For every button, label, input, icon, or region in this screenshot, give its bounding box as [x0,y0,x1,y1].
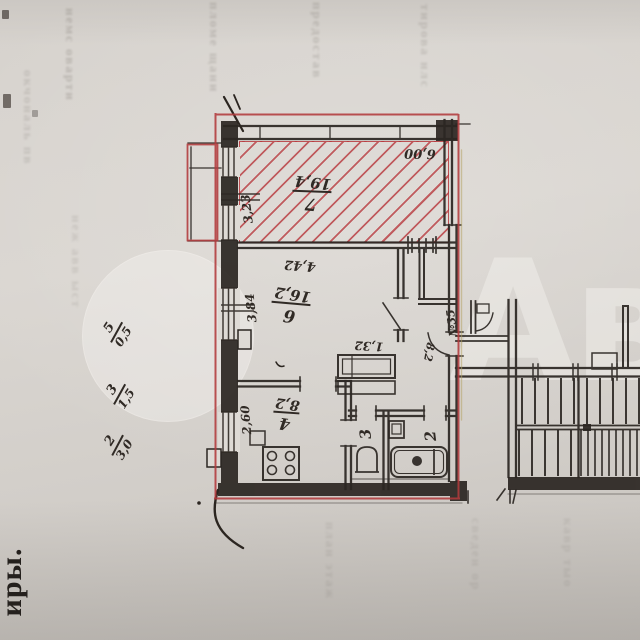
floor-plan-photo: немс оварти пломе щани предостав тирова … [0,0,640,640]
dim-hall-width: 1,32 [354,339,384,353]
room3-label: 3 [358,428,374,440]
room4-number: 4 [278,415,291,432]
apartment-number-label: №35 [445,309,459,337]
balcony-outline [188,145,218,241]
room4-area: 8,2 [274,395,300,412]
page-edge-printed-word: иры. [0,548,29,617]
room2-label: 2 [423,430,439,442]
dim-kitchen-height: 2,60 [239,405,254,435]
dim-room6-width: 4,42 [284,257,317,272]
toilet-icon [355,447,379,472]
dim-room6-height: 3,84 [244,293,259,323]
room7-number: 7 [304,194,318,212]
stove-icon [263,447,299,480]
dim-room7-height: 3,23 [239,194,254,224]
floor-plan-drawing [0,0,640,640]
hall-area-label: 8,2 [422,342,436,363]
room7-label: 7 19,4 [292,173,332,214]
room6-number: 6 [282,306,296,325]
room6-label: 6 16,2 [270,284,312,326]
room4-label: 4 8,2 [272,395,301,433]
dim-room7-width: 6,00 [404,146,436,160]
room7-area: 19,4 [294,173,332,192]
